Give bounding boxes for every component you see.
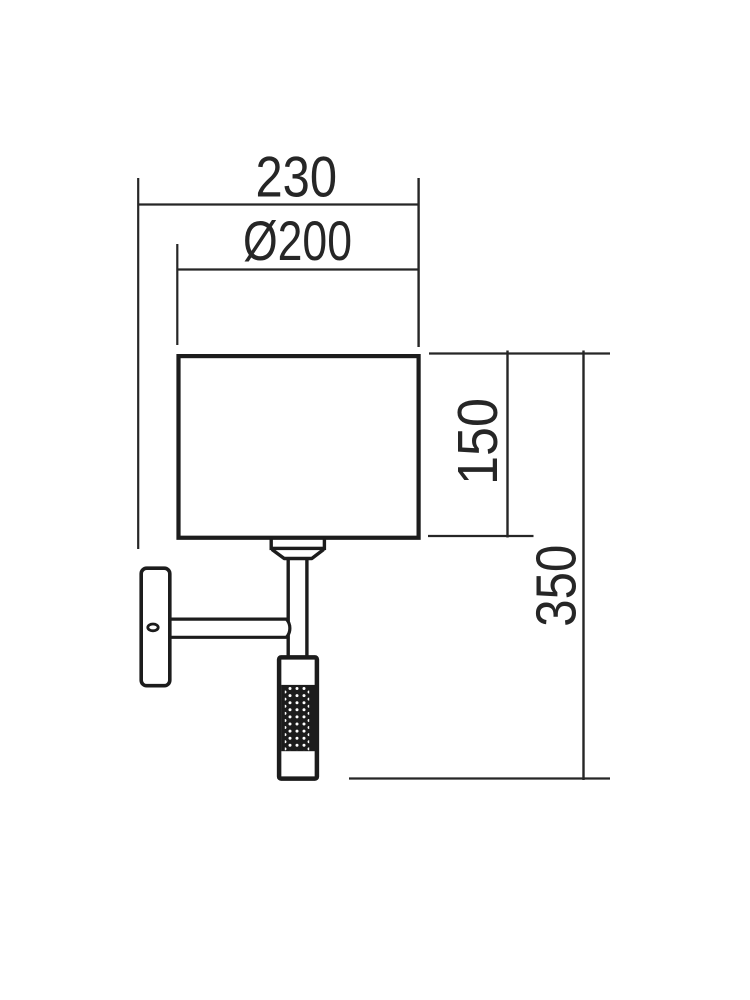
svg-text:150: 150	[446, 398, 510, 485]
svg-text:350: 350	[525, 545, 589, 627]
svg-text:Ø200: Ø200	[243, 210, 352, 272]
svg-text:230: 230	[256, 146, 338, 210]
